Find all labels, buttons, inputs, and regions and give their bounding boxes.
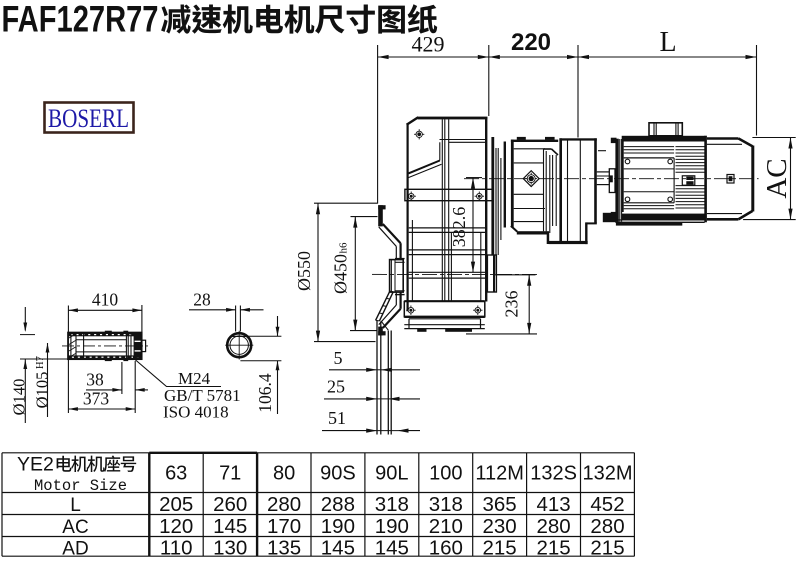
svg-text:215: 215: [590, 536, 624, 557]
svg-text:365: 365: [482, 493, 516, 516]
svg-text:Ø550: Ø550: [294, 251, 314, 291]
svg-text:373: 373: [83, 389, 110, 409]
svg-text:100: 100: [429, 463, 462, 485]
svg-text:220: 220: [511, 29, 551, 56]
svg-text:FAF127R77: FAF127R77: [2, 0, 159, 40]
svg-text:112M: 112M: [475, 463, 524, 485]
svg-text:135: 135: [267, 536, 301, 557]
svg-text:28: 28: [193, 290, 211, 310]
svg-text:145: 145: [213, 515, 247, 538]
svg-text:215: 215: [482, 536, 516, 557]
svg-text:90S: 90S: [320, 463, 356, 485]
svg-text:190: 190: [375, 515, 409, 538]
svg-text:410: 410: [92, 290, 119, 310]
svg-text:106.4: 106.4: [255, 373, 275, 413]
svg-text:5: 5: [334, 348, 343, 368]
svg-text:280: 280: [590, 515, 624, 538]
svg-text:L: L: [70, 495, 81, 516]
svg-text:429: 429: [412, 32, 445, 57]
svg-text:210: 210: [429, 515, 463, 538]
svg-text:145: 145: [321, 536, 355, 557]
svg-text:AC: AC: [761, 158, 793, 198]
svg-text:382.6: 382.6: [449, 207, 469, 248]
svg-text:215: 215: [536, 536, 570, 557]
svg-text:110: 110: [160, 536, 193, 557]
svg-text:Ø450: Ø450: [331, 254, 351, 294]
svg-text:452: 452: [590, 493, 624, 516]
svg-text:205: 205: [159, 493, 193, 516]
svg-text:Motor Size: Motor Size: [34, 477, 127, 495]
svg-text:280: 280: [267, 493, 301, 516]
svg-text:280: 280: [536, 515, 570, 538]
svg-text:H7: H7: [35, 356, 46, 369]
svg-text:318: 318: [429, 493, 463, 516]
svg-text:170: 170: [267, 515, 301, 538]
svg-text:120: 120: [159, 515, 193, 538]
svg-text:YE2: YE2: [17, 454, 54, 476]
svg-text:413: 413: [536, 493, 570, 516]
svg-text:63: 63: [165, 463, 187, 485]
svg-text:51: 51: [328, 408, 346, 428]
svg-text:Ø105: Ø105: [33, 372, 52, 409]
svg-text:236: 236: [502, 291, 522, 318]
svg-text:Ø140: Ø140: [10, 379, 29, 416]
svg-text:38: 38: [86, 370, 104, 390]
svg-text:ISO 4018: ISO 4018: [163, 403, 229, 422]
svg-text:h6: h6: [338, 242, 350, 254]
svg-text:260: 260: [213, 493, 247, 516]
svg-text:130: 130: [213, 536, 247, 557]
svg-text:AD: AD: [62, 538, 88, 557]
svg-text:L: L: [659, 27, 676, 58]
svg-text:190: 190: [321, 515, 355, 538]
svg-text:90L: 90L: [375, 463, 408, 485]
svg-text:71: 71: [219, 463, 241, 485]
svg-text:132S: 132S: [530, 463, 577, 485]
svg-text:132M: 132M: [582, 463, 632, 485]
svg-text:BOSERL: BOSERL: [48, 104, 129, 133]
svg-text:318: 318: [375, 493, 409, 516]
svg-text:160: 160: [429, 536, 463, 557]
svg-text:145: 145: [375, 536, 409, 557]
svg-text:288: 288: [321, 493, 355, 516]
svg-text:25: 25: [327, 377, 345, 397]
svg-text:AC: AC: [62, 517, 88, 538]
svg-text:80: 80: [273, 463, 295, 485]
svg-text:230: 230: [482, 515, 516, 538]
